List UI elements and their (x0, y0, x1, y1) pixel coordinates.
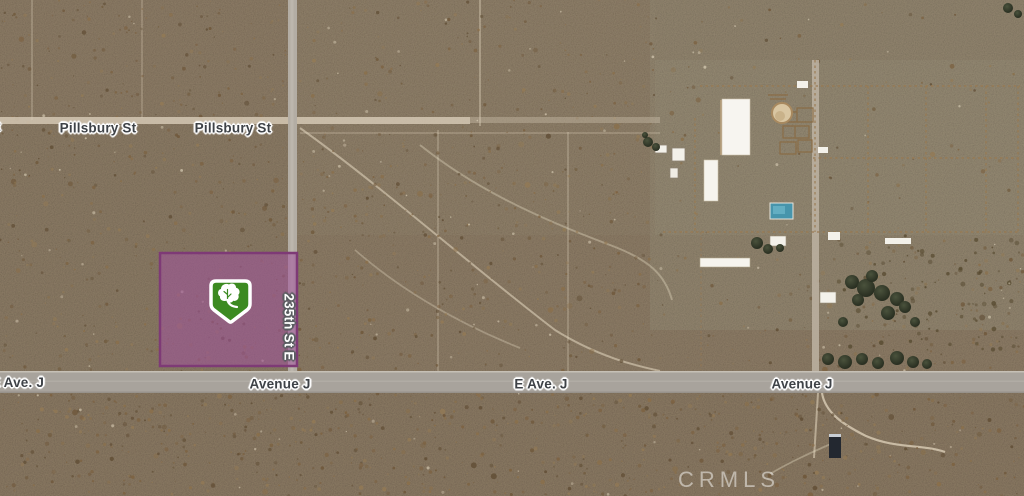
pool-highlight (773, 206, 785, 214)
road-pillsbury (0, 117, 470, 124)
satellite-map[interactable]: t Pillsbury St Pillsbury St 235th St E E… (0, 0, 1024, 496)
map-imagery (0, 0, 1024, 496)
dark-shed (829, 434, 841, 458)
